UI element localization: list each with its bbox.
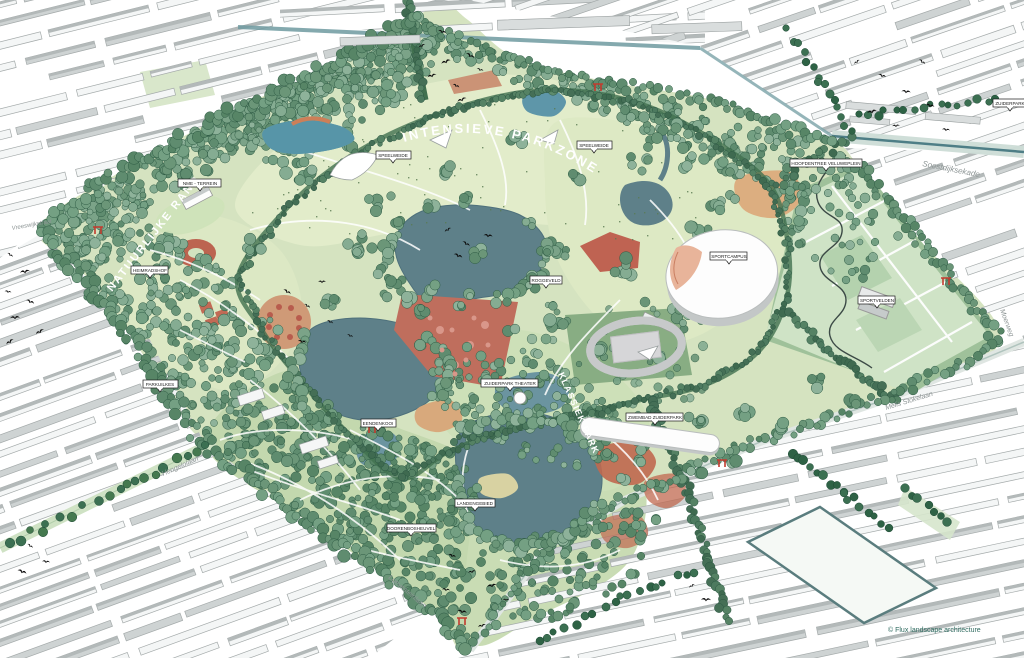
svg-text:ZUIDERPARK THEATER: ZUIDERPARK THEATER [484,381,536,386]
svg-text:EENDENKOOI: EENDENKOOI [363,421,394,426]
svg-text:ZWEMBAD ZUIDERPARK: ZWEMBAD ZUIDERPARK [628,415,683,420]
svg-text:SPORTCAMPUS: SPORTCAMPUS [711,254,746,259]
svg-text:SPEELWEIDE: SPEELWEIDE [378,153,408,158]
svg-text:NME - TERREIN: NME - TERREIN [183,181,217,186]
svg-text:ZUIDERPARK: ZUIDERPARK [995,101,1024,106]
svg-text:DOORENBOSHEUVEL: DOORENBOSHEUVEL [387,526,436,531]
svg-text:SPEELWEIDE: SPEELWEIDE [579,143,609,148]
svg-text:SPORTVELDEN: SPORTVELDEN [860,298,894,303]
svg-text:PARKUILKES: PARKUILKES [146,382,175,387]
svg-text:© Flux landscape architecture: © Flux landscape architecture [888,626,981,634]
svg-text:LANDENGEBIED: LANDENGEBIED [457,501,494,506]
svg-text:ROGGEVELD: ROGGEVELD [531,278,561,283]
svg-text:HOOFDENTREE VELUWEPLEIN: HOOFDENTREE VELUWEPLEIN [791,161,860,166]
svg-text:HEIMRADSHOF: HEIMRADSHOF [133,268,167,273]
